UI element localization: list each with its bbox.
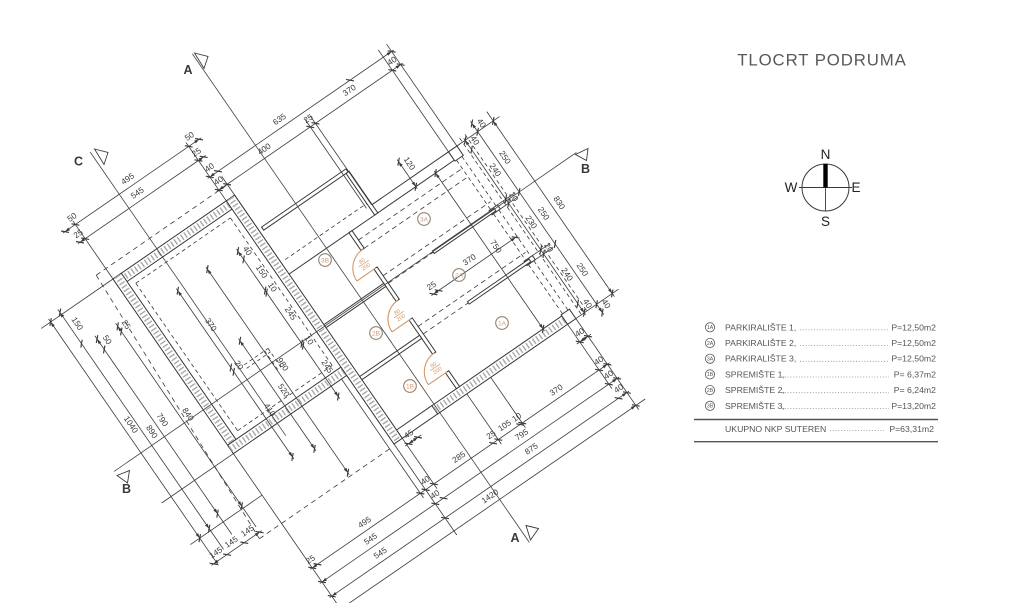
svg-text:W: W: [785, 180, 798, 195]
svg-text:3B: 3B: [321, 257, 330, 264]
svg-text:C: C: [74, 155, 83, 169]
svg-text:3A: 3A: [420, 216, 429, 223]
svg-text:P=63,31m2: P=63,31m2: [889, 424, 934, 434]
svg-text:P=12,50m2: P=12,50m2: [891, 338, 936, 348]
svg-text:P=12,50m2: P=12,50m2: [891, 322, 936, 332]
svg-text:B: B: [122, 482, 131, 496]
svg-text:P=13,20m2: P=13,20m2: [891, 401, 936, 411]
svg-text:2B: 2B: [372, 330, 381, 337]
svg-text:UKUPNO NKP SUTEREN: UKUPNO NKP SUTEREN: [725, 424, 826, 434]
svg-text:PARKIRALIŠTE 3,: PARKIRALIŠTE 3,: [725, 354, 796, 364]
svg-text:1A: 1A: [707, 325, 714, 331]
svg-text:3B: 3B: [707, 404, 714, 410]
svg-text:N: N: [821, 147, 831, 162]
svg-text:2A: 2A: [455, 272, 464, 279]
svg-text:2A: 2A: [707, 341, 714, 347]
svg-text:P= 6,24m2: P= 6,24m2: [894, 385, 936, 395]
svg-text:B: B: [581, 162, 590, 176]
svg-text:SPREMIŠTE 2,: SPREMIŠTE 2,: [725, 385, 785, 395]
svg-text:TLOCRT PODRUMA: TLOCRT PODRUMA: [737, 51, 907, 70]
svg-text:S: S: [821, 214, 830, 229]
svg-text:3A: 3A: [707, 357, 714, 363]
svg-text:SPREMIŠTE 1,: SPREMIŠTE 1,: [725, 369, 785, 379]
svg-text:SPREMIŠTE 3,: SPREMIŠTE 3,: [725, 401, 785, 411]
svg-text:A: A: [511, 531, 520, 545]
svg-text:A: A: [184, 63, 193, 77]
svg-text:E: E: [851, 180, 860, 195]
svg-text:PARKIRALIŠTE 2,: PARKIRALIŠTE 2,: [725, 338, 796, 348]
svg-text:P= 6,37m2: P= 6,37m2: [894, 369, 936, 379]
svg-text:1B: 1B: [707, 372, 714, 378]
svg-text:PARKIRALIŠTE 1,: PARKIRALIŠTE 1,: [725, 322, 796, 332]
svg-text:1B: 1B: [406, 383, 415, 390]
svg-text:1A: 1A: [498, 320, 507, 327]
svg-text:2B: 2B: [707, 388, 714, 394]
svg-text:P=12,50m2: P=12,50m2: [891, 354, 936, 364]
